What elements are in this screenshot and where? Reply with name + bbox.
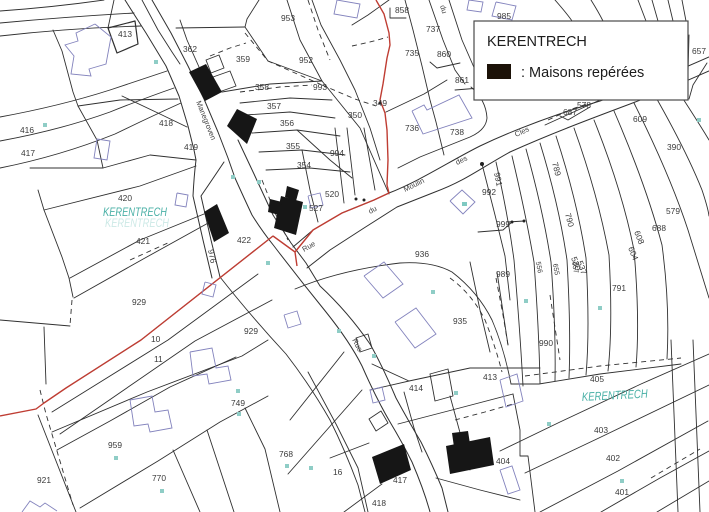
svg-text:579: 579 [666,206,680,216]
svg-text:749: 749 [231,398,245,408]
svg-text:936: 936 [415,249,429,259]
svg-text:609: 609 [633,114,647,124]
svg-text:735: 735 [405,48,419,58]
svg-text:10: 10 [151,334,161,344]
svg-text:999: 999 [496,219,510,229]
svg-text:420: 420 [118,193,132,203]
svg-text:657: 657 [692,46,706,56]
svg-text:959: 959 [108,440,122,450]
svg-text:402: 402 [606,453,620,463]
svg-text:738: 738 [450,127,464,137]
svg-text:417: 417 [21,148,35,158]
svg-text:520: 520 [325,189,339,199]
svg-text:356: 356 [280,118,294,128]
svg-text:419: 419 [184,142,198,152]
svg-text:413: 413 [483,372,497,382]
svg-text:350: 350 [348,110,362,120]
svg-text:992: 992 [482,187,496,197]
svg-text:687: 687 [563,107,577,117]
svg-text:362: 362 [183,44,197,54]
svg-text:736: 736 [405,123,419,133]
svg-text:860: 860 [437,49,451,59]
svg-text:791: 791 [612,283,626,293]
svg-text:413: 413 [118,29,132,39]
svg-text:952: 952 [299,55,313,65]
svg-text:990: 990 [539,338,553,348]
svg-text:390: 390 [667,142,681,152]
svg-text:405: 405 [590,374,604,384]
svg-text:: Maisons repérées: : Maisons repérées [521,65,644,81]
svg-text:358: 358 [255,82,269,92]
svg-text:527: 527 [309,203,323,213]
svg-text:355: 355 [286,141,300,151]
svg-text:858: 858 [395,5,409,15]
svg-text:929: 929 [244,326,258,336]
svg-text:861: 861 [455,75,469,85]
svg-text:417: 417 [393,475,407,485]
svg-text:16: 16 [333,467,343,477]
svg-text:416: 416 [20,125,34,135]
svg-text:414: 414 [409,383,423,393]
svg-text:418: 418 [159,118,173,128]
svg-text:929: 929 [132,297,146,307]
svg-text:354: 354 [297,160,311,170]
svg-text:985: 985 [497,11,511,21]
svg-text:953: 953 [281,13,295,23]
svg-text:994: 994 [330,148,344,158]
svg-text:935: 935 [453,316,467,326]
svg-text:359: 359 [236,54,250,64]
svg-text:921: 921 [37,475,51,485]
svg-text:770: 770 [152,473,166,483]
svg-text:404: 404 [496,456,510,466]
svg-text:349: 349 [373,98,387,108]
svg-text:357: 357 [267,101,281,111]
svg-text:11: 11 [154,354,163,364]
svg-text:993: 993 [313,82,327,92]
svg-text:768: 768 [279,449,293,459]
svg-text:403: 403 [594,425,608,435]
svg-text:421: 421 [136,236,150,246]
svg-text:KERENTRECH: KERENTRECH [105,216,169,230]
svg-text:418: 418 [372,498,386,508]
svg-text:KERENTRECH: KERENTRECH [487,34,587,50]
svg-text:401: 401 [615,487,629,497]
svg-text:688: 688 [652,223,666,233]
svg-text:737: 737 [426,24,440,34]
svg-text:989: 989 [496,269,510,279]
svg-text:422: 422 [237,235,251,245]
svg-text:578: 578 [577,100,591,110]
